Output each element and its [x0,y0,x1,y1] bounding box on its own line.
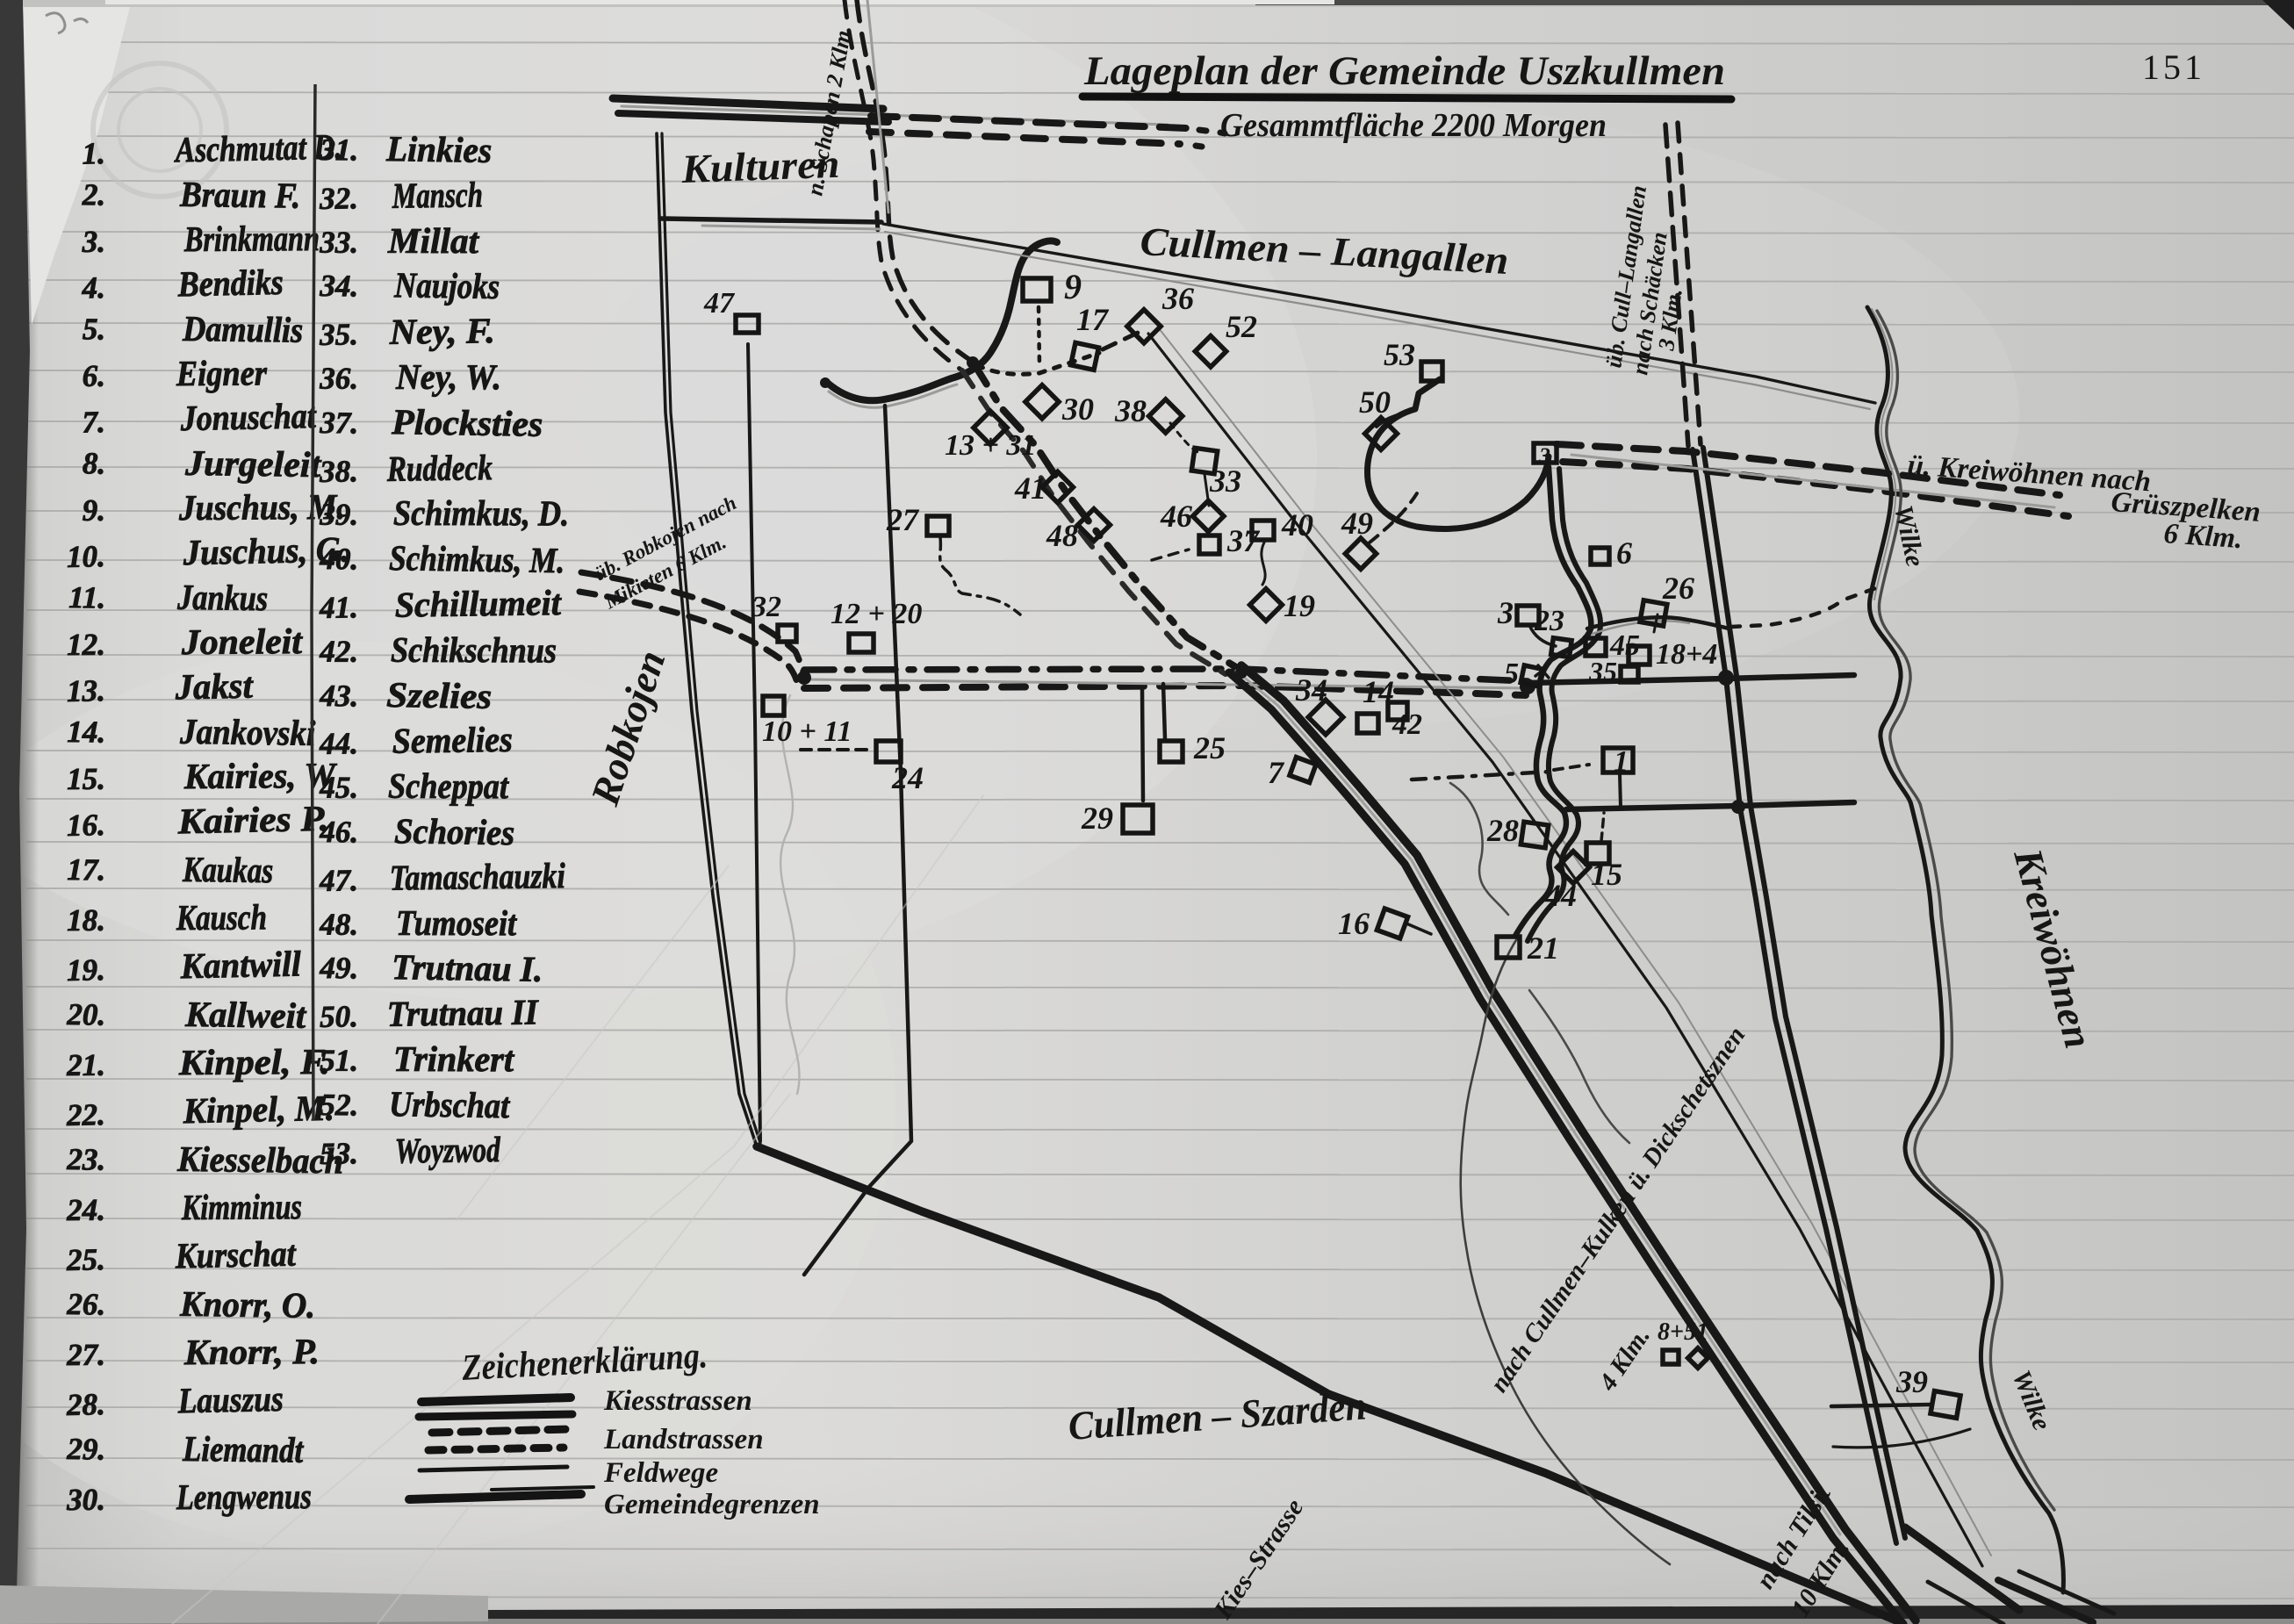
svg-text:19: 19 [1284,588,1315,623]
svg-text:Trutnau II: Trutnau II [386,991,540,1033]
svg-text:Ney, F.: Ney, F. [388,310,495,352]
svg-text:Trutnau I.: Trutnau I. [392,946,543,989]
svg-text:Jurgeleit: Jurgeleit [184,442,322,485]
svg-text:Damullis: Damullis [182,308,304,350]
svg-text:35.: 35. [319,317,358,352]
svg-text:3: 3 [1497,595,1514,630]
svg-text:35: 35 [1588,656,1617,687]
svg-text:Kairies P.: Kairies P. [176,798,329,842]
svg-text:Lauszus: Lauszus [176,1378,284,1421]
svg-text:47.: 47. [319,863,358,898]
svg-text:Trinkert: Trinkert [393,1038,515,1079]
svg-text:9.: 9. [83,493,106,528]
svg-text:7.: 7. [82,405,105,440]
svg-text:41: 41 [1014,471,1046,506]
svg-text:Lengwenus: Lengwenus [176,1476,312,1517]
svg-text:27.: 27. [66,1338,105,1372]
svg-text:Liemandt: Liemandt [182,1428,305,1470]
svg-text:Kantwill: Kantwill [179,943,301,986]
svg-text:Mansch: Mansch [392,174,483,215]
svg-text:Szelies: Szelies [386,674,493,716]
svg-text:Jankus: Jankus [176,577,268,618]
svg-text:5: 5 [1504,658,1519,690]
svg-text:Knorr, P.: Knorr, P. [183,1331,320,1372]
svg-text:42: 42 [1392,708,1422,741]
svg-text:18.: 18. [67,903,105,938]
svg-text:Aschmutat D.: Aschmutat D. [173,126,342,169]
svg-text:16.: 16. [67,808,106,843]
svg-text:21: 21 [1527,931,1559,966]
svg-text:52: 52 [1226,309,1257,344]
svg-text:Feldwege: Feldwege [603,1457,718,1489]
svg-text:42.: 42. [319,635,358,669]
svg-text:Kinpel, M.: Kinpel, M. [182,1088,334,1132]
svg-text:151: 151 [2142,47,2205,87]
svg-text:1: 1 [1614,745,1629,778]
svg-text:9: 9 [1064,267,1082,306]
svg-text:Kallweit: Kallweit [184,994,307,1036]
svg-text:44: 44 [1544,878,1577,913]
svg-text:30.: 30. [66,1483,105,1517]
svg-text:Braun F.: Braun F. [179,174,301,216]
svg-text:Schimkus, M.: Schimkus, M. [389,537,565,580]
svg-text:19.: 19. [67,952,106,988]
svg-text:Kairies, W: Kairies, W [183,755,338,796]
svg-text:1.: 1. [82,136,105,171]
svg-text:Plocksties: Plocksties [391,401,543,444]
svg-text:24.: 24. [66,1193,105,1227]
svg-text:Millat: Millat [387,220,480,261]
svg-text:53.: 53. [320,1136,358,1171]
svg-text:3.: 3. [82,225,106,259]
svg-text:Urbschat: Urbschat [389,1083,511,1125]
svg-text:28.: 28. [66,1387,106,1422]
svg-text:Kausch: Kausch [176,896,267,938]
svg-text:29.: 29. [66,1432,105,1467]
svg-text:Tamaschauzki: Tamaschauzki [389,855,565,898]
svg-text:Kinpel, F.: Kinpel, F. [178,1041,330,1082]
svg-text:40: 40 [1281,507,1313,543]
svg-text:Jonuschat: Jonuschat [179,395,317,438]
svg-text:13.: 13. [67,673,106,708]
svg-text:Schimkus, D.: Schimkus, D. [393,492,569,534]
svg-text:24: 24 [891,760,924,795]
svg-text:Gesammtfläche 2200 Morgen: Gesammtfläche 2200 Morgen [1220,107,1607,144]
svg-text:Scheppat: Scheppat [388,765,510,806]
svg-text:39.: 39. [319,498,358,532]
svg-text:31.: 31. [319,133,358,168]
svg-text:38.: 38. [319,454,358,489]
svg-text:Schillumeit: Schillumeit [394,582,562,625]
svg-text:27: 27 [886,502,920,537]
svg-text:Joneleit: Joneleit [181,621,304,662]
svg-text:32: 32 [751,591,781,623]
svg-text:23: 23 [1534,605,1564,637]
svg-text:16: 16 [1338,906,1370,941]
svg-text:10.: 10. [67,539,106,574]
svg-text:52.: 52. [320,1088,358,1123]
svg-text:6 Klm.: 6 Klm. [2162,518,2243,555]
svg-text:Tumoseit: Tumoseit [396,902,518,943]
svg-text:32.: 32. [319,181,358,216]
svg-text:6.: 6. [83,359,106,393]
svg-text:Jankovski: Jankovski [179,711,316,753]
svg-text:38: 38 [1114,393,1147,428]
svg-text:12.: 12. [67,628,105,662]
svg-text:22.: 22. [66,1097,106,1132]
svg-text:36.: 36. [319,362,358,396]
svg-text:28: 28 [1486,813,1519,848]
svg-text:17.: 17. [67,852,105,887]
svg-text:Bendiks: Bendiks [176,262,284,305]
svg-text:39: 39 [1895,1364,1928,1399]
svg-text:25: 25 [1193,730,1226,765]
svg-text:Semelies: Semelies [392,719,513,761]
svg-text:Brinkmann: Brinkmann [183,218,320,259]
svg-text:15: 15 [1591,857,1622,892]
svg-text:30: 30 [1061,392,1094,427]
svg-text:20.: 20. [66,997,105,1032]
svg-text:46.: 46. [319,815,358,850]
svg-text:8+51: 8+51 [1658,1319,1708,1346]
svg-text:51.: 51. [320,1044,358,1078]
svg-text:Kiesselbach: Kiesselbach [176,1139,344,1182]
svg-text:3: 3 [1538,443,1550,469]
svg-text:Kiesstrassen: Kiesstrassen [603,1385,752,1417]
svg-text:47: 47 [703,287,736,320]
svg-text:17: 17 [1076,302,1110,337]
svg-text:11.: 11. [68,580,105,615]
svg-text:5.: 5. [83,312,106,346]
svg-text:Kurschat: Kurschat [174,1233,297,1276]
svg-text:Jakst: Jakst [174,665,255,708]
svg-text:12 + 20: 12 + 20 [831,598,922,630]
svg-text:7: 7 [1268,755,1285,790]
svg-text:48: 48 [1046,518,1078,553]
svg-text:Gemeindegrenzen: Gemeindegrenzen [604,1489,820,1520]
svg-text:6: 6 [1616,535,1632,571]
svg-text:26: 26 [1662,571,1694,606]
svg-text:37.: 37. [319,406,358,441]
svg-text:34: 34 [1295,672,1327,708]
svg-text:18+4: 18+4 [1656,638,1717,671]
svg-text:Lageplan der Gemeinde Uszkullm: Lageplan der Gemeinde Uszkullmen [1083,48,1725,94]
svg-text:Kaukas: Kaukas [182,849,273,890]
svg-text:Kimminus: Kimminus [181,1186,302,1227]
svg-text:49.: 49. [319,951,358,986]
svg-text:33: 33 [1209,463,1241,499]
svg-text:23.: 23. [66,1142,105,1177]
svg-text:25.: 25. [66,1242,106,1277]
svg-text:53: 53 [1384,337,1415,372]
svg-text:15.: 15. [67,762,105,796]
svg-text:Woyzwod: Woyzwod [394,1129,500,1171]
svg-text:Schikschnus: Schikschnus [391,629,557,671]
svg-text:33.: 33. [319,226,358,260]
svg-text:8.: 8. [83,446,106,480]
svg-text:Naujoks: Naujoks [393,264,500,306]
svg-text:26.: 26. [66,1287,105,1322]
svg-text:29: 29 [1081,801,1113,836]
svg-text:46: 46 [1160,499,1192,534]
svg-text:Eigner: Eigner [176,352,268,393]
svg-text:Ruddeck: Ruddeck [386,447,493,489]
svg-text:Ney, W.: Ney, W. [395,356,501,397]
svg-text:36: 36 [1161,281,1194,316]
svg-text:50: 50 [1359,384,1391,420]
svg-text:Knorr, O.: Knorr, O. [179,1283,316,1326]
svg-text:14.: 14. [67,715,105,750]
svg-text:Linkies: Linkies [385,128,493,170]
svg-text:48.: 48. [319,908,358,942]
svg-text:50.: 50. [320,999,358,1034]
svg-text:21.: 21. [66,1048,105,1082]
svg-text:2.: 2. [82,177,106,212]
svg-text:Landstrassen: Landstrassen [603,1424,764,1455]
svg-text:44.: 44. [319,726,358,761]
svg-text:49: 49 [1341,506,1373,541]
svg-text:45.: 45. [319,771,358,805]
svg-text:40.: 40. [319,542,358,577]
svg-text:41.: 41. [319,590,358,625]
svg-text:Schories: Schories [394,810,515,852]
svg-text:43.: 43. [319,679,358,714]
svg-text:10 + 11: 10 + 11 [762,715,852,748]
svg-text:34.: 34. [319,269,358,304]
svg-text:13 + 31: 13 + 31 [945,429,1036,462]
svg-text:4.: 4. [81,270,105,305]
